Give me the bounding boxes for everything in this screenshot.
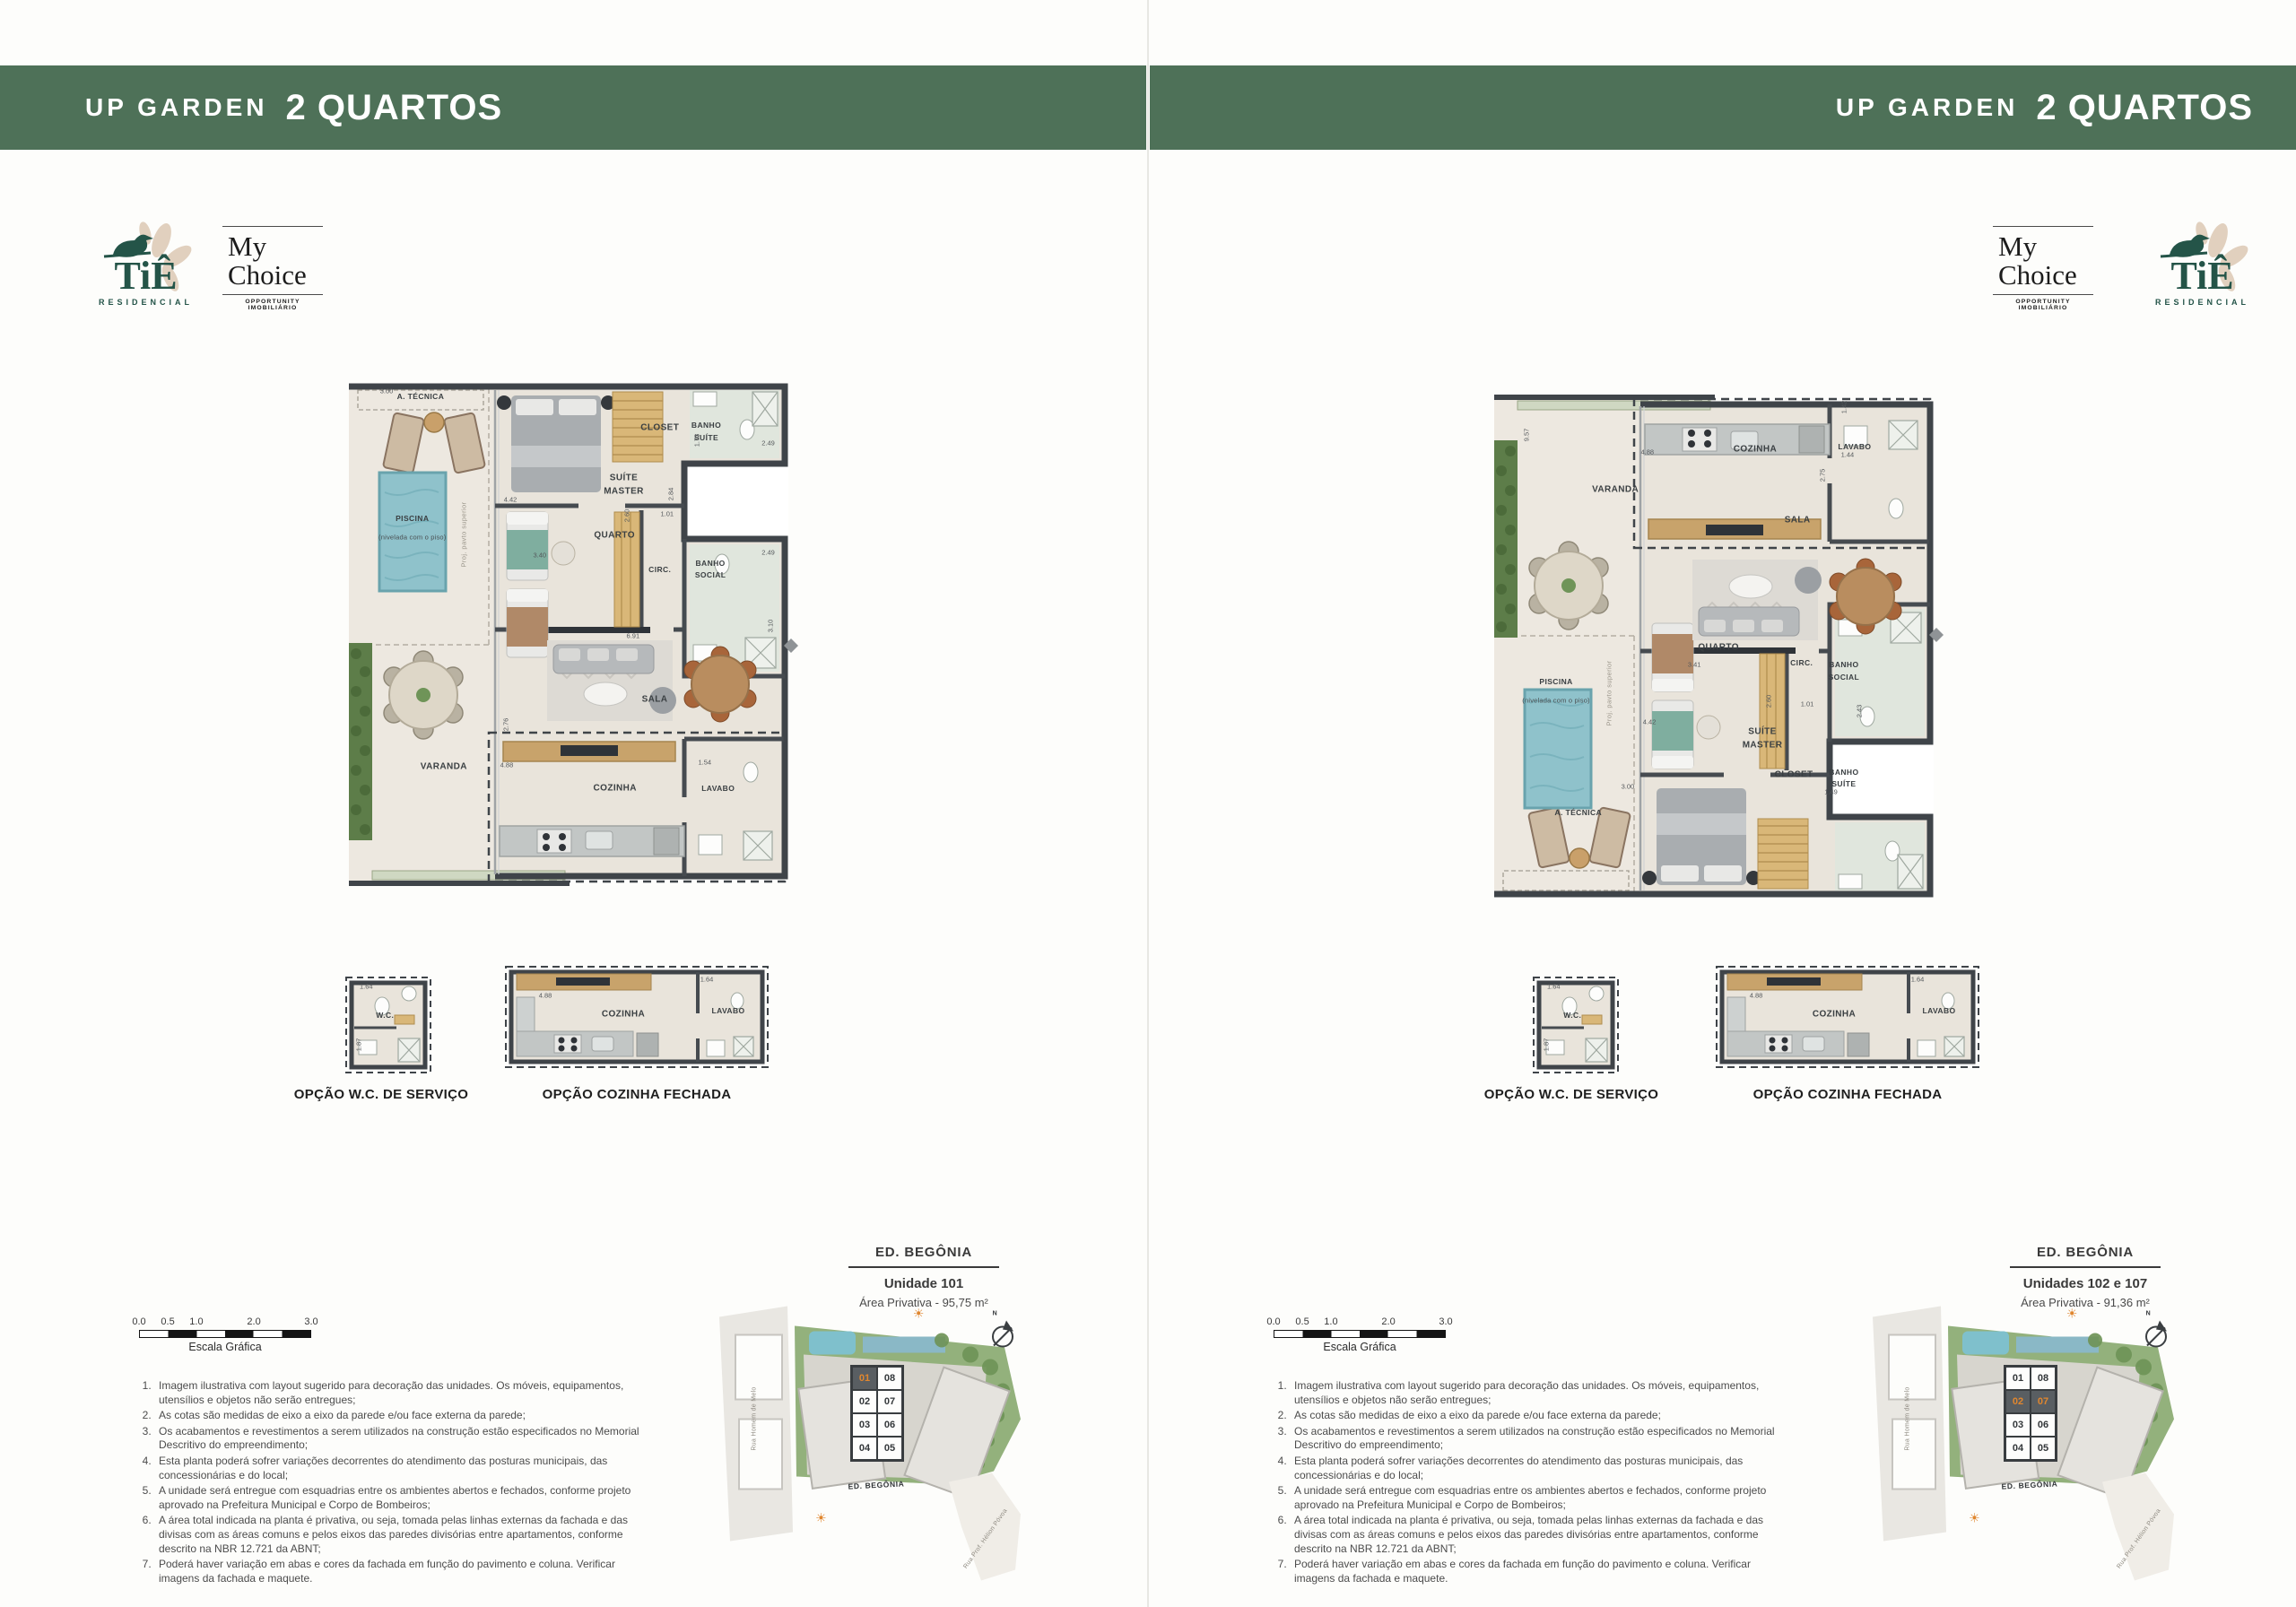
note-item: As cotas são medidas de eixo a eixo da p… <box>1290 1409 1792 1423</box>
dimension-label: 4.42 <box>504 495 517 503</box>
scale-tick: 0.0 <box>1266 1316 1280 1327</box>
option-wc-plan: 1.64W.C.1.87 <box>1530 970 1624 1082</box>
mychoice-rule-bottom <box>1993 294 2093 295</box>
option-wc-caption: OPÇÃO W.C. DE SERVIÇO <box>1484 1087 1658 1102</box>
scale-ticks: 0.0 0.5 1.0 2.0 3.0 <box>1274 1316 1446 1330</box>
room-label: LAVABO <box>1838 442 1871 451</box>
header-bar-right: UP GARDEN 2 QUARTOS <box>1150 65 2296 150</box>
room-label: QUARTO <box>594 531 635 541</box>
room-label: ED. BEGÔNIA <box>848 1479 904 1490</box>
dimension-label: 1.87 <box>354 1038 362 1051</box>
note-item: A área total indicada na planta é privat… <box>1290 1514 1792 1556</box>
room-label: SALA <box>642 695 668 705</box>
room-label: COZINHA <box>602 1009 645 1019</box>
dimension-label: 2.49 <box>761 548 775 556</box>
option-kitchen-plan: 4.88COZINHALAVABO1.64 <box>502 961 771 1073</box>
option-wc-label-layer: 1.64W.C.1.87 <box>1530 970 1624 1082</box>
room-label: LAVABO <box>711 1006 744 1015</box>
dimension-label: 4.42 <box>1643 717 1657 725</box>
room-label: MASTER <box>604 486 644 496</box>
room-label: Proj. pavto superior <box>1605 661 1613 726</box>
dimension-label: 2.76 <box>501 718 509 732</box>
unit-building-name: ED. BEGÔNIA <box>848 1245 999 1268</box>
room-label: SOCIAL <box>695 570 726 579</box>
room-label: PISCINA <box>1539 677 1572 686</box>
note-item: Os acabamentos e revestimentos a serem u… <box>1290 1425 1792 1453</box>
room-label: (nivelada com o piso) <box>378 534 446 542</box>
header-title: 2 QUARTOS <box>286 88 503 128</box>
room-label: N <box>2146 1310 2151 1316</box>
room-label: ☀ <box>913 1306 925 1321</box>
scale-tick: 2.0 <box>247 1316 260 1327</box>
option-wc-label-layer: 1.64W.C.1.87 <box>343 970 437 1082</box>
dimension-label: 1.64 <box>1911 976 1925 984</box>
room-label: BANHO <box>696 559 726 568</box>
room-label: LAVABO <box>701 784 735 793</box>
scale-bar <box>1274 1330 1446 1338</box>
room-label: CLOSET <box>1775 770 1813 780</box>
scale-tick: 2.0 <box>1381 1316 1395 1327</box>
tie-logo-subtext: RESIDENCIAL <box>2142 298 2263 307</box>
tie-logo: TiÊ RESIDENCIAL <box>85 213 206 307</box>
mychoice-line1: My <box>1998 232 2093 261</box>
note-item: Poderá haver variação em abas e cores da… <box>154 1558 657 1585</box>
option-wc-caption: OPÇÃO W.C. DE SERVIÇO <box>294 1087 468 1102</box>
room-label: SALA <box>1785 515 1811 525</box>
tie-logo-text: TiÊ <box>2142 258 2263 294</box>
room-label: ☀ <box>1969 1510 1980 1525</box>
dimension-label: 1.42 <box>1839 401 1848 414</box>
room-label: Rua Prof. Hélion Póvoa <box>962 1507 1008 1569</box>
room-label: A. TÉCNICA <box>1554 808 1602 817</box>
floorplan-units-102-107: COZINHAVARANDALAVABOSALAQUARTOCIRC.BANHO… <box>1491 375 2006 906</box>
room-label: W.C. <box>1563 1011 1581 1020</box>
header-brand: UP GARDEN <box>85 93 268 122</box>
dimension-label: 2.84 <box>666 487 674 500</box>
floorplan-label-layer: COZINHAVARANDALAVABOSALAQUARTOCIRC.BANHO… <box>1491 375 2006 906</box>
header-bar-left: UP GARDEN 2 QUARTOS <box>0 65 1146 150</box>
option-kitchen-label-layer: 4.88COZINHALAVABO1.64 <box>1713 961 1982 1073</box>
dimension-label: 1.64 <box>700 976 714 984</box>
scale-tick: 1.0 <box>189 1316 203 1327</box>
dimension-label: 3.41 <box>1688 661 1701 669</box>
page-divider <box>1147 0 1149 1607</box>
header-brand: UP GARDEN <box>1836 93 2019 122</box>
room-label: CLOSET <box>640 423 679 433</box>
tie-logo-subtext: RESIDENCIAL <box>85 298 206 307</box>
mychoice-logo: My Choice OPPORTUNITY IMOBILIÁRIO <box>1993 226 2093 311</box>
room-label: BANHO <box>691 421 721 430</box>
note-item: As cotas são medidas de eixo a eixo da p… <box>154 1409 657 1423</box>
dimension-label: 2.75 <box>1818 469 1826 482</box>
note-item: Os acabamentos e revestimentos a serem u… <box>154 1425 657 1453</box>
floorplan-unit-101: A. TÉCNICAPISCINA(nivelada com o piso)SU… <box>345 375 861 906</box>
sitemap-label-layer: ED. BEGÔNIARua Homem de MeloRua Prof. Hé… <box>1871 1299 2176 1599</box>
room-label: Rua Homem de Melo <box>751 1386 757 1450</box>
room-label: QUARTO <box>1698 643 1739 653</box>
dimension-label: 2.49 <box>761 439 775 447</box>
room-label: N <box>993 1310 997 1316</box>
room-label: COZINHA <box>1813 1009 1856 1019</box>
option-kitchen-label-layer: 4.88COZINHALAVABO1.64 <box>502 961 771 1073</box>
note-item: Imagem ilustrativa com layout sugerido p… <box>154 1379 657 1407</box>
header-title: 2 QUARTOS <box>2036 88 2253 128</box>
scale-ticks: 0.0 0.5 1.0 2.0 3.0 <box>139 1316 311 1330</box>
option-kitchen-plan: 4.88COZINHALAVABO1.64 <box>1713 961 1982 1073</box>
scale-tick: 0.5 <box>1295 1316 1309 1327</box>
room-label: BANHO <box>1829 768 1858 777</box>
room-label: BANHO <box>1829 660 1858 669</box>
dimension-label: 4.88 <box>539 991 552 999</box>
dimension-label: 4.88 <box>1750 991 1763 999</box>
mychoice-logo: My Choice OPPORTUNITY IMOBILIÁRIO <box>222 226 323 311</box>
dimension-label: 3.00 <box>1622 782 1635 790</box>
room-label: Proj. pavto superior <box>460 501 468 567</box>
dimension-label: 1.73 <box>693 434 701 447</box>
legal-notes: Imagem ilustrativa com layout sugerido p… <box>1272 1379 1792 1587</box>
dimension-label: 9.57 <box>1523 429 1531 442</box>
room-label: PISCINA <box>396 514 429 523</box>
dimension-label: 4.88 <box>500 760 514 769</box>
note-item: A unidade será entregue com esquadrias e… <box>154 1484 657 1512</box>
room-label: Rua Prof. Hélion Póvoa <box>2116 1507 2161 1569</box>
dimension-label: 1.54 <box>698 759 711 767</box>
graphic-scale: 0.0 0.5 1.0 2.0 3.0 Escala Gráfica <box>1274 1316 1446 1353</box>
mychoice-rule-bottom <box>222 294 323 295</box>
room-label: A. TÉCNICA <box>397 392 445 401</box>
note-item: A unidade será entregue com esquadrias e… <box>1290 1484 1792 1512</box>
site-location-map: 0108020703060405 ED. BEGÔNIARua Homem de… <box>717 1299 1022 1599</box>
scale-label: Escala Gráfica <box>1274 1341 1446 1353</box>
site-location-map: 0108020703060405 ED. BEGÔNIARua Homem de… <box>1871 1299 2176 1599</box>
mychoice-subtext: OPPORTUNITY IMOBILIÁRIO <box>222 299 323 311</box>
dimension-label: 6.91 <box>627 632 640 640</box>
dimension-label: 3.40 <box>533 551 546 559</box>
dimension-label: 4.88 <box>1640 448 1654 456</box>
dimension-label: 1.87 <box>1542 1038 1550 1051</box>
dimension-label: 1.44 <box>1841 451 1855 459</box>
note-item: A área total indicada na planta é privat… <box>154 1514 657 1556</box>
room-label: COZINHA <box>594 783 637 793</box>
dimension-label: 3.10 <box>766 620 774 633</box>
dimension-label: 2.60 <box>622 509 631 523</box>
floorplan-label-layer: A. TÉCNICAPISCINA(nivelada com o piso)SU… <box>345 375 861 906</box>
room-label: SUÍTE <box>1748 727 1776 737</box>
scale-tick: 1.0 <box>1324 1316 1337 1327</box>
room-label: MASTER <box>1743 740 1783 750</box>
unit-building-name: ED. BEGÔNIA <box>2010 1245 2161 1268</box>
scale-tick: 0.0 <box>132 1316 145 1327</box>
mychoice-subtext: OPPORTUNITY IMOBILIÁRIO <box>1993 299 2093 311</box>
room-label: ED. BEGÔNIA <box>2001 1479 2057 1490</box>
scale-tick: 3.0 <box>1439 1316 1452 1327</box>
scale-tick: 3.0 <box>304 1316 317 1327</box>
dimension-label: 1.64 <box>1547 982 1561 990</box>
option-kitchen-caption: OPÇÃO COZINHA FECHADA <box>1753 1087 1943 1102</box>
dimension-label: 2.43 <box>1856 705 1864 718</box>
note-item: Esta planta poderá sofrer variações deco… <box>1290 1455 1792 1482</box>
room-label: CIRC. <box>1790 658 1813 667</box>
unit-number: Unidades 102 e 107 <box>1982 1276 2188 1291</box>
option-wc-plan: 1.64W.C.1.87 <box>343 970 437 1082</box>
dimension-label: 1.49 <box>1824 787 1838 795</box>
graphic-scale: 0.0 0.5 1.0 2.0 3.0 Escala Gráfica <box>139 1316 311 1353</box>
dimension-label: 1.01 <box>1801 700 1814 708</box>
note-item: Poderá haver variação em abas e cores da… <box>1290 1558 1792 1585</box>
mychoice-line2: Choice <box>1998 261 2093 290</box>
room-label: SUÍTE <box>610 473 638 483</box>
room-label: VARANDA <box>1592 485 1639 495</box>
mychoice-line2: Choice <box>228 261 323 290</box>
scale-bar <box>139 1330 311 1338</box>
dimension-label: 1.01 <box>660 509 674 517</box>
mychoice-line1: My <box>228 232 323 261</box>
room-label: COZINHA <box>1734 444 1777 454</box>
room-label: CIRC. <box>648 565 671 574</box>
scale-tick: 0.5 <box>161 1316 174 1327</box>
scale-label: Escala Gráfica <box>139 1341 311 1353</box>
brochure-spread: { "header": { "brand": "UP GARDEN", "tit… <box>0 0 2296 1607</box>
tie-logo-text: TiÊ <box>85 258 206 294</box>
room-label: LAVABO <box>1922 1006 1955 1015</box>
dimension-label: 1.64 <box>360 982 373 990</box>
room-label: (nivelada com o piso) <box>1522 696 1589 704</box>
note-item: Esta planta poderá sofrer variações deco… <box>154 1455 657 1482</box>
unit-number: Unidade 101 <box>821 1276 1027 1291</box>
room-label: SOCIAL <box>1829 673 1860 682</box>
dimension-label: 2.60 <box>1764 695 1772 708</box>
room-label: W.C. <box>376 1011 394 1020</box>
room-label: ☀ <box>2066 1306 2078 1321</box>
legal-notes: Imagem ilustrativa com layout sugerido p… <box>136 1379 657 1587</box>
dimension-label: 3.00 <box>380 387 394 395</box>
tie-logo: TiÊ RESIDENCIAL <box>2142 213 2263 307</box>
room-label: ☀ <box>815 1510 827 1525</box>
sitemap-label-layer: ED. BEGÔNIARua Homem de MeloRua Prof. Hé… <box>717 1299 1022 1599</box>
room-label: Rua Homem de Melo <box>1904 1386 1910 1450</box>
note-item: Imagem ilustrativa com layout sugerido p… <box>1290 1379 1792 1407</box>
option-kitchen-caption: OPÇÃO COZINHA FECHADA <box>543 1087 732 1102</box>
room-label: VARANDA <box>421 762 467 772</box>
